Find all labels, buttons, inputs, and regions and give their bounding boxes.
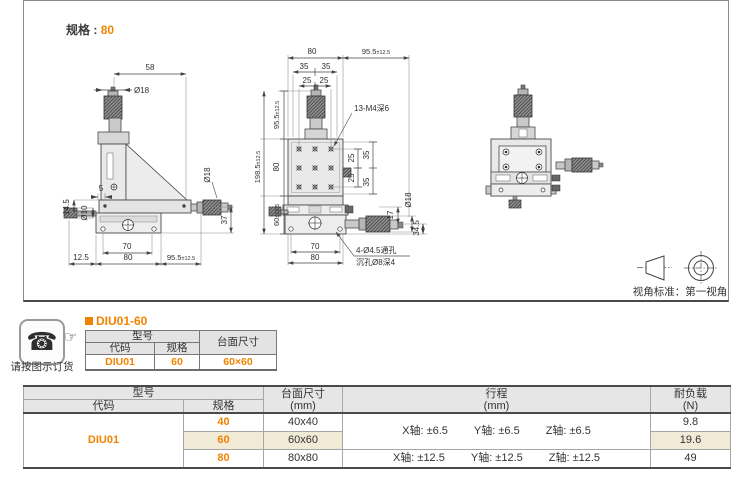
dim-25b: 25: [320, 76, 329, 85]
dim-70-bot: 70: [311, 242, 320, 251]
header-travel-title: 行程: [343, 388, 650, 400]
mini-spec-table: 型号 台面尺寸 代码 规格 DIU01 60 60×60: [85, 330, 277, 371]
front-view-drawing: 80 95.5±12.5 35 35 25 25 13-M4深6: [253, 47, 427, 267]
travel-z: Z轴: ±6.5: [546, 425, 591, 437]
cell-spec-40: 40: [184, 413, 264, 432]
catalog-page: 规格 : 80: [0, 0, 750, 480]
dim-dia18: Ø18: [404, 192, 413, 208]
dim-dia10: Ø10: [80, 205, 89, 221]
view-standard-note: 视角标准：第一视角: [633, 285, 728, 298]
micrometer-knob-top: [514, 95, 532, 117]
mini-header-size: 台面尺寸: [200, 331, 277, 355]
top-view-drawing: [486, 85, 603, 208]
dim-dia18-top: Ø18: [134, 86, 150, 95]
orange-square-bullet: [85, 317, 93, 325]
first-angle-cone-icon: [646, 256, 664, 280]
cell-load-80: 49: [651, 450, 731, 469]
dim-r35a: 35: [362, 150, 371, 159]
table-row: DIU01 40 40x40 X轴: ±6.5Y轴: ±6.5Z轴: ±6.5 …: [24, 413, 731, 432]
mini-header-spec: 规格: [155, 343, 200, 355]
header-load-title: 耐负载: [651, 388, 730, 400]
cell-size-60: 60x60: [264, 432, 343, 450]
dim-25a: 25: [303, 76, 312, 85]
cell-load-60: 19.6: [651, 432, 731, 450]
dim-95-5: 95.5±12.5: [167, 253, 195, 262]
dim-80-bot: 80: [311, 253, 320, 262]
header-load-unit: (N): [651, 400, 730, 412]
header-travel-unit: (mm): [343, 400, 650, 412]
dim-34-5: 34.5: [412, 220, 421, 236]
header-size-unit: (mm): [264, 400, 342, 412]
dim-80: 80: [124, 253, 133, 262]
product-title-row: DIU01-60: [85, 314, 147, 328]
gusset-plate: [126, 144, 187, 200]
product-title: DIU01-60: [96, 314, 147, 328]
main-spec-table: 型号 台面尺寸 (mm) 行程 (mm) 耐负载 (N) 代码 规格: [23, 385, 731, 469]
side-view-drawing: 58 Ø18 5 14.5 Ø10 12.5: [62, 63, 234, 266]
dim-14-5: 14.5: [62, 199, 71, 215]
dim-5: 5: [99, 184, 104, 193]
cell-travel-large: X轴: ±12.5Y轴: ±12.5Z轴: ±12.5: [343, 450, 651, 469]
cell-code: DIU01: [24, 413, 184, 468]
header-code: 代码: [24, 400, 184, 414]
dim-r25b: 25: [347, 173, 356, 182]
dim-r25a: 25: [347, 153, 356, 162]
header-load: 耐负载 (N): [651, 386, 731, 413]
micrometer-knob-right: [203, 200, 221, 215]
header-size-title: 台面尺寸: [264, 388, 342, 400]
mini-header-code: 代码: [86, 343, 155, 355]
cell-spec-60: 60: [184, 432, 264, 450]
thread-label: 13-M4深6: [354, 104, 390, 113]
spec-header: 规格 : 80: [66, 21, 114, 38]
micrometer-knob-top: [307, 96, 325, 118]
dim-35b: 35: [322, 62, 331, 71]
travel-x: X轴: ±6.5: [402, 425, 448, 437]
dim-12-5: 12.5: [73, 253, 89, 262]
mini-value-code: DIU01: [86, 355, 155, 371]
order-caption: 请按图示订货: [1, 359, 83, 374]
travel-z: Z轴: ±12.5: [549, 452, 600, 464]
dim-v80: 80: [272, 162, 281, 171]
header-spec: 规格: [184, 400, 264, 414]
dim-37: 37: [220, 215, 229, 224]
micrometer-knob-top: [104, 96, 122, 119]
first-angle-symbol: 视角标准：第一视角: [633, 251, 728, 298]
header-model: 型号: [24, 386, 264, 400]
travel-y: Y轴: ±12.5: [471, 452, 523, 464]
dim-v95: 95.5±12.5: [272, 101, 281, 129]
dim-17: 17: [386, 210, 395, 219]
mini-header-model: 型号: [86, 331, 200, 343]
hole-label-line1: 4-Ø4.5通孔: [356, 245, 396, 255]
dim-dia18-right: Ø18: [203, 167, 212, 183]
hole-label-line2: 沉孔Ø8深4: [356, 258, 396, 267]
travel-y: Y轴: ±6.5: [474, 425, 520, 437]
header-travel: 行程 (mm): [343, 386, 651, 413]
header-size: 台面尺寸 (mm): [264, 386, 343, 413]
dim-58: 58: [146, 63, 155, 72]
cell-spec-80: 80: [184, 450, 264, 469]
dim-95-5-top: 95.5±12.5: [362, 47, 390, 56]
cell-load-40: 9.8: [651, 413, 731, 432]
dim-r35b: 35: [362, 177, 371, 186]
cell-travel-small: X轴: ±6.5Y轴: ±6.5Z轴: ±6.5: [343, 413, 651, 450]
travel-x: X轴: ±12.5: [393, 452, 445, 464]
cell-size-40: 40x40: [264, 413, 343, 432]
drawing-frame: 58 Ø18 5 14.5 Ø10 12.5: [23, 0, 729, 302]
mini-value-spec: 60: [155, 355, 200, 371]
dim-80-top: 80: [308, 47, 317, 56]
spec-label: 规格 :: [66, 23, 97, 37]
technical-drawings: 58 Ø18 5 14.5 Ø10 12.5: [24, 1, 729, 301]
dim-35a: 35: [300, 62, 309, 71]
spec-value: 80: [101, 23, 114, 37]
dim-70: 70: [123, 242, 132, 251]
pointing-hand-icon: ☞: [64, 328, 77, 346]
cell-size-80: 80x80: [264, 450, 343, 469]
mini-value-size: 60×60: [200, 355, 277, 371]
micrometer-knob-right: [572, 158, 592, 172]
dim-v198: 198.5±12.5: [253, 151, 262, 184]
